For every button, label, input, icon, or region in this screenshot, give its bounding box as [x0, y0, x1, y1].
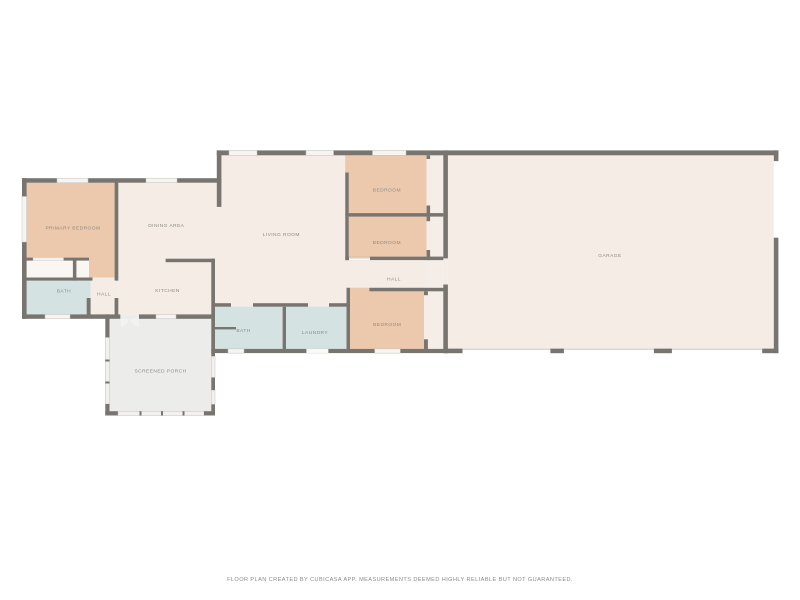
svg-text:HALL: HALL [387, 277, 401, 283]
svg-text:SCREENED PORCH: SCREENED PORCH [134, 369, 186, 375]
svg-text:LAUNDRY: LAUNDRY [302, 330, 329, 336]
svg-text:BEDROOM: BEDROOM [373, 322, 401, 328]
svg-text:GARAGE: GARAGE [598, 253, 622, 259]
svg-text:PRIMARY BEDROOM: PRIMARY BEDROOM [45, 226, 100, 232]
svg-text:DINING AREA: DINING AREA [148, 223, 184, 229]
svg-text:BATH: BATH [57, 288, 71, 294]
svg-text:KITCHEN: KITCHEN [155, 288, 179, 294]
svg-text:FLOOR PLAN CREATED BY CUBICASA: FLOOR PLAN CREATED BY CUBICASA APP. MEAS… [227, 577, 573, 583]
svg-text:LIVING ROOM: LIVING ROOM [263, 232, 300, 238]
svg-text:BEDROOM: BEDROOM [373, 240, 401, 246]
svg-text:HALL: HALL [97, 291, 111, 297]
svg-text:BEDROOM: BEDROOM [373, 188, 401, 194]
svg-text:BATH: BATH [236, 328, 250, 334]
